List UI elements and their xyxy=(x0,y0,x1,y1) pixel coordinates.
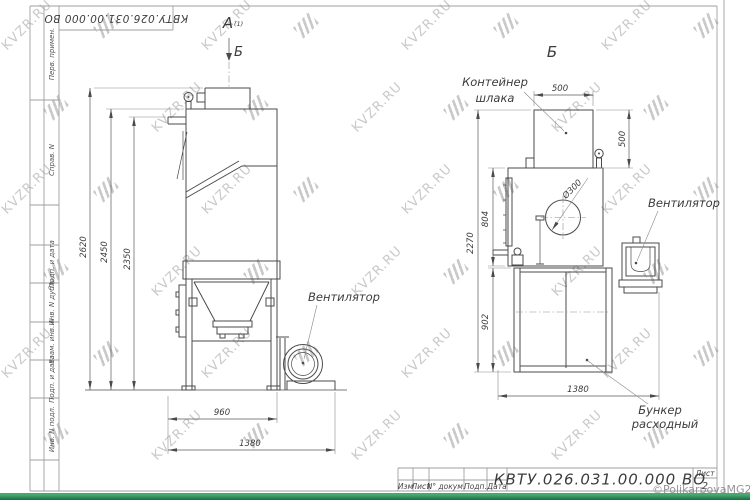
fan-leader-dot-b xyxy=(635,262,638,265)
dim-804: 804 xyxy=(481,211,491,227)
view-a-label-index: (1) xyxy=(234,20,243,28)
top-stamp-designation: КВТУ.026.031.00.000 ВО xyxy=(44,12,188,24)
view-b-label: Б xyxy=(547,43,557,61)
gauge-center xyxy=(598,153,600,155)
extension-lines xyxy=(94,88,335,454)
view-b: Б Ø300 500 500 2270 804 902 1380 xyxy=(462,43,720,431)
boiler-unit-outline xyxy=(168,88,335,390)
bunker-leader-line xyxy=(588,361,648,404)
title-col-podp: Подп. xyxy=(464,482,487,491)
dim-500-right: 500 xyxy=(618,131,628,147)
dim-2620: 2620 xyxy=(79,236,89,258)
frame-field-podp-data-2: Подп. и дата xyxy=(48,355,56,403)
dim-1380-b: 1380 xyxy=(567,385,589,395)
title-col-ndokum: N° докум. xyxy=(427,482,466,491)
dim-2350: 2350 xyxy=(123,248,133,270)
drawing-sheet: KVZR.RUKVZR.RUKVZR.RUKVZR.RUKVZR.RUKVZR.… xyxy=(0,0,750,500)
frame-field-inv-podl: Инв. N подл. xyxy=(48,406,56,452)
dim-500-top: 500 xyxy=(552,84,568,94)
slag-container-callout-line2: шлака xyxy=(476,91,515,105)
frame-field-sprav-n: Справ. N xyxy=(48,143,56,176)
view-a-label: А xyxy=(222,14,233,32)
bottom-accent-bar xyxy=(0,493,750,500)
bunker-callout-line1: Бункер xyxy=(638,403,682,417)
bunker-callout-line2: расходный xyxy=(631,417,699,431)
sheet-label: Лист xyxy=(694,469,715,478)
drain-valve-icon xyxy=(514,248,521,255)
top-valve-center xyxy=(188,96,190,98)
fan-leader-dot xyxy=(302,362,305,365)
engineering-drawing: КВТУ.026.031.00.000 ВО Перв. примен. Спр… xyxy=(0,0,750,500)
view-direction-label: Б xyxy=(234,45,243,60)
dim-2270: 2270 xyxy=(466,232,476,254)
dim-1380: 1380 xyxy=(239,439,261,449)
view-a: А (1) Б 2620 2450 2350 xyxy=(79,14,380,454)
fan-callout-a: Вентилятор xyxy=(308,290,380,304)
bunker-leader-dot xyxy=(586,359,589,362)
unit-side-outline xyxy=(493,110,662,372)
centerlines-b xyxy=(516,196,610,312)
dim-902: 902 xyxy=(481,314,491,330)
frame-field-perv-primen: Перв. примен. xyxy=(48,28,56,81)
slag-container-callout-line1: Контейнер xyxy=(462,75,528,89)
container-leader-line xyxy=(524,92,564,131)
fan-callout-b: Вентилятор xyxy=(648,196,720,210)
dim-2450: 2450 xyxy=(100,241,110,263)
container-leader-dot xyxy=(565,132,568,135)
view-direction-arrow-icon xyxy=(226,53,232,61)
dim-960: 960 xyxy=(214,408,230,418)
